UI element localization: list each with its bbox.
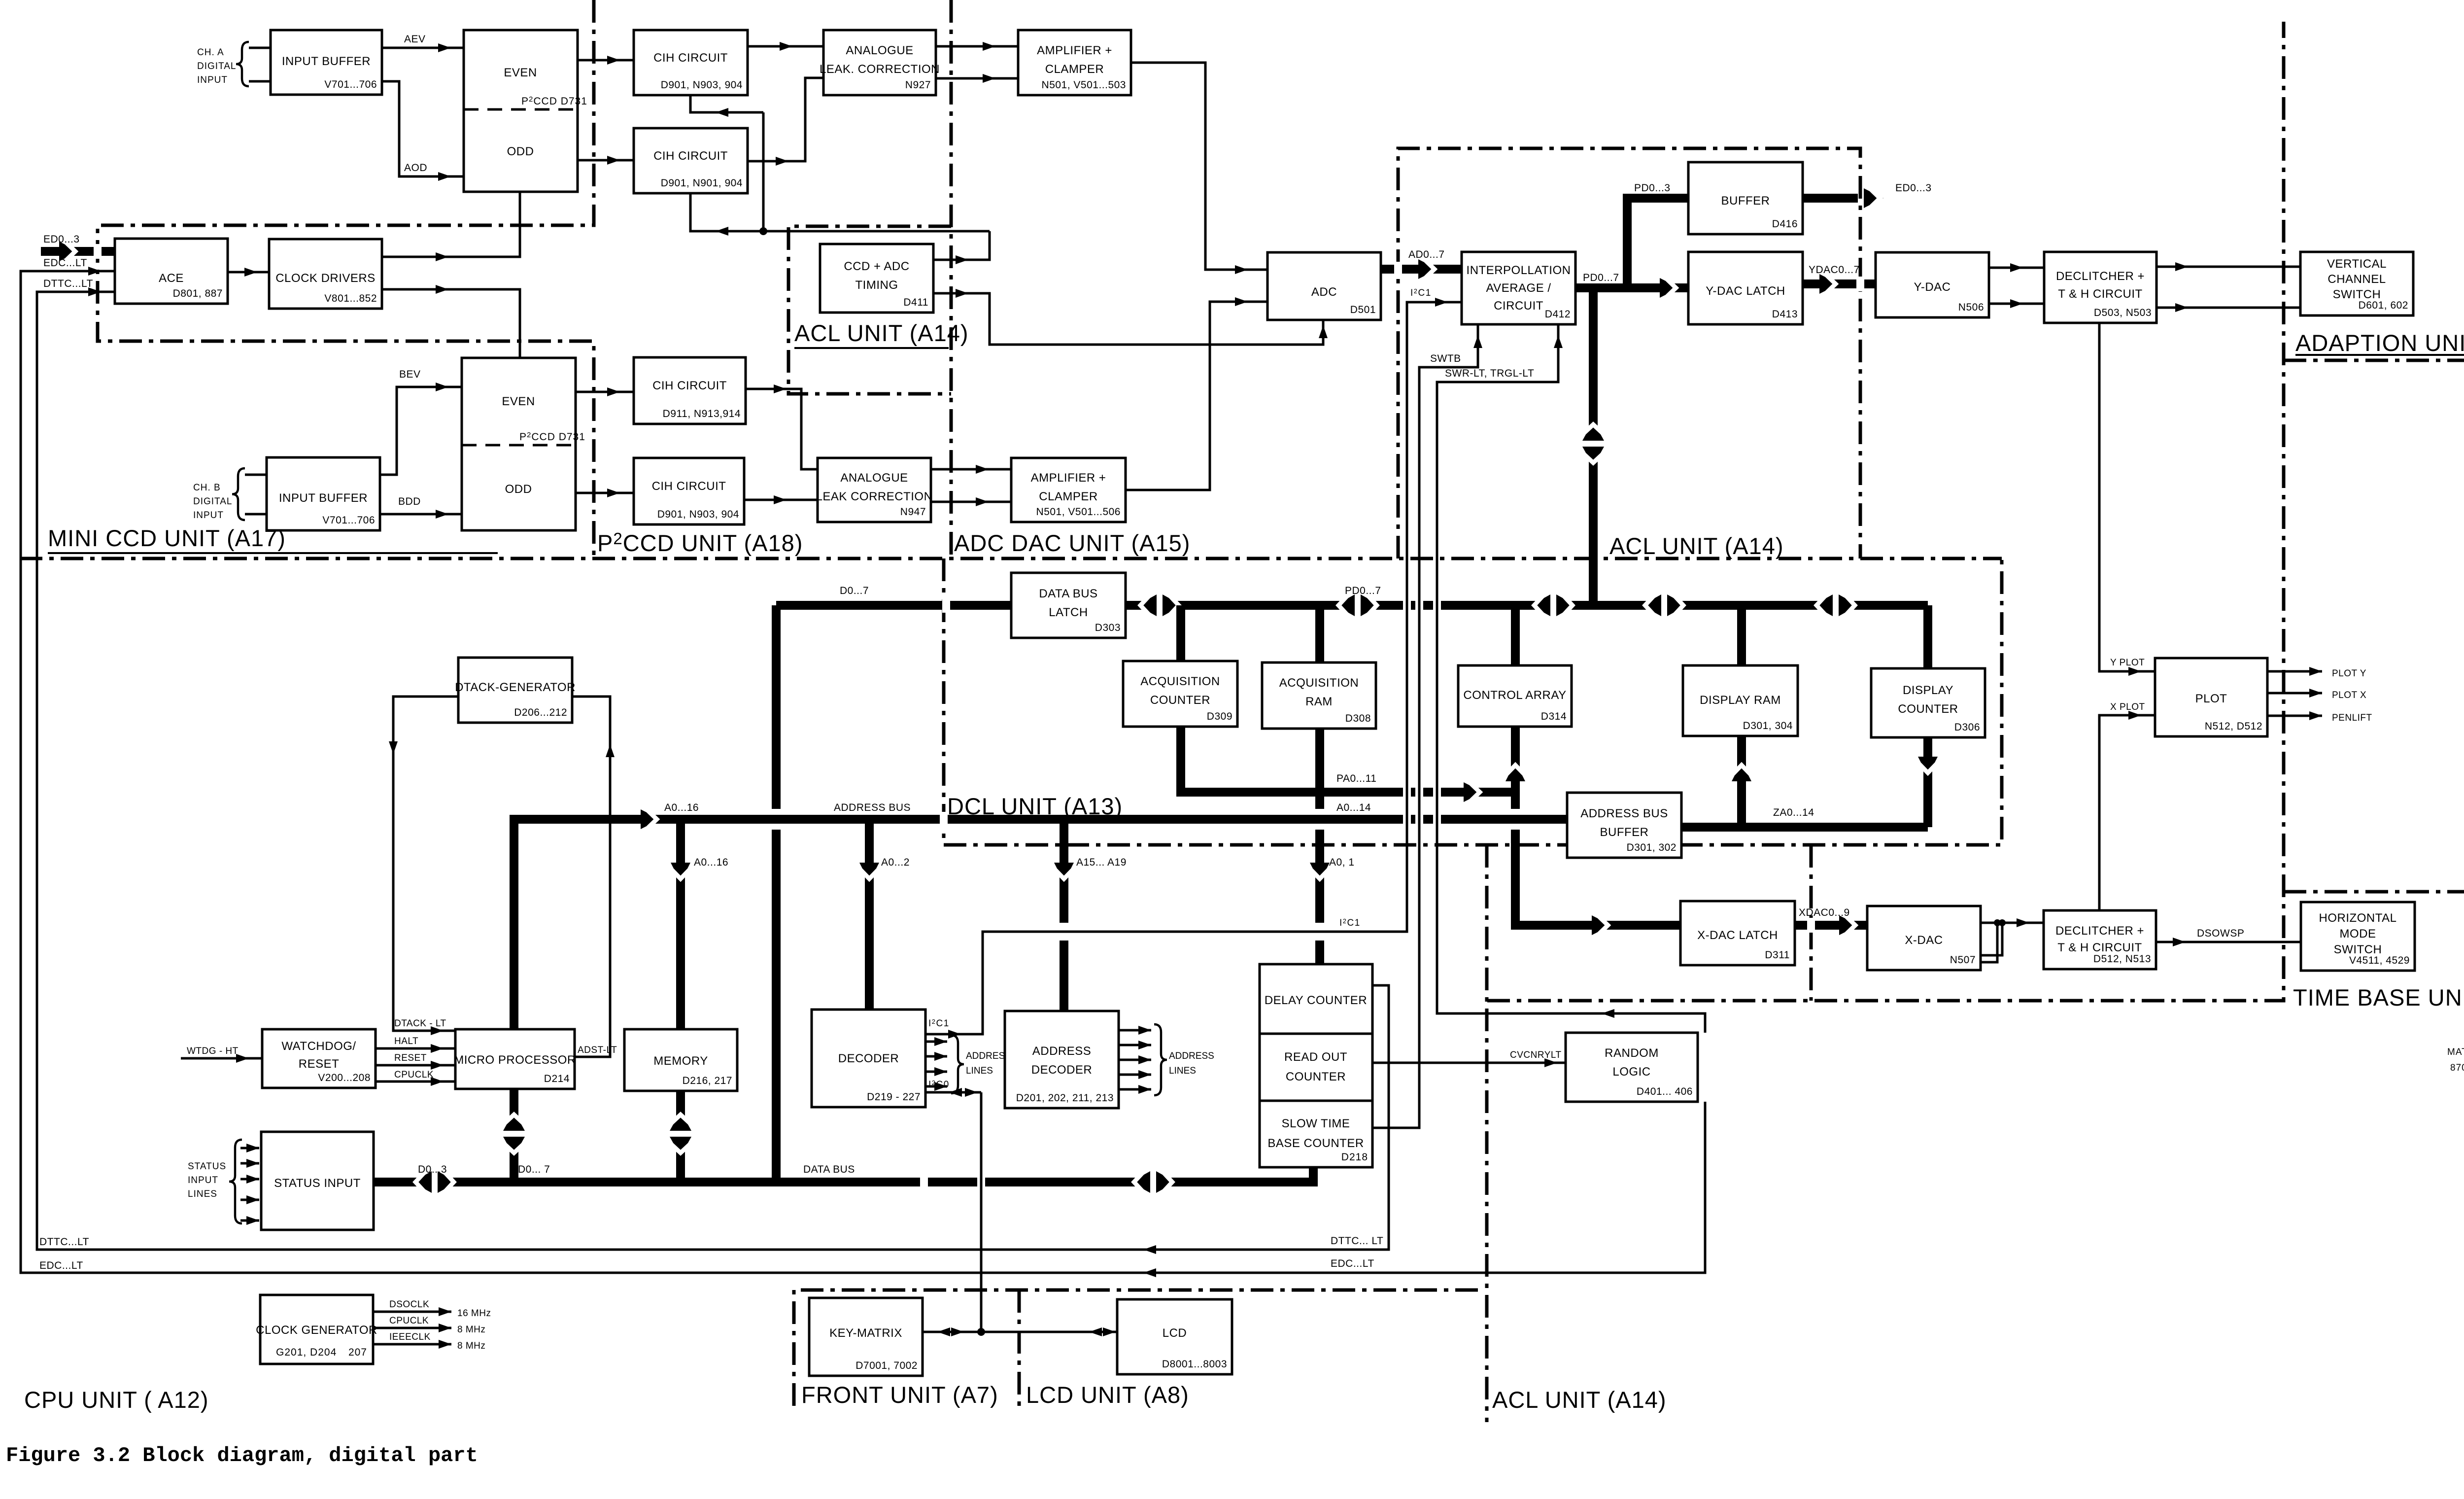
svg-text:COUNTER: COUNTER [1286, 1070, 1346, 1083]
svg-text:N501, V501...506: N501, V501...506 [1036, 506, 1121, 518]
svg-text:PLOT: PLOT [2195, 692, 2227, 705]
svg-text:N506: N506 [1958, 302, 1984, 313]
svg-text:AD0...7: AD0...7 [1408, 249, 1445, 260]
svg-text:D206...212: D206...212 [514, 707, 567, 718]
svg-text:LINES: LINES [188, 1189, 217, 1199]
svg-text:DISPLAY: DISPLAY [1903, 684, 1953, 697]
svg-text:ED0...3: ED0...3 [1895, 182, 1932, 194]
svg-text:IEEECLK: IEEECLK [389, 1332, 431, 1342]
svg-text:D901, N903, 904: D901, N903, 904 [661, 79, 743, 91]
svg-text:SWTB: SWTB [1430, 353, 1461, 364]
svg-text:8 MHz: 8 MHz [457, 1325, 485, 1335]
svg-text:I2C1: I2C1 [1339, 917, 1361, 928]
svg-text:ADDRESS BUS: ADDRESS BUS [1580, 807, 1668, 820]
svg-text:FRONT UNIT (A7): FRONT UNIT (A7) [801, 1382, 998, 1408]
svg-text:D416: D416 [1772, 218, 1798, 230]
svg-text:CH. B: CH. B [193, 483, 221, 493]
svg-text:D306: D306 [1954, 722, 1980, 733]
svg-text:LEAK. CORRECTION: LEAK. CORRECTION [820, 63, 940, 76]
svg-text:WTDG - HT: WTDG - HT [187, 1046, 239, 1056]
svg-text:G201, D204: G201, D204 [276, 1347, 337, 1358]
svg-text:D301, 302: D301, 302 [1627, 842, 1677, 853]
svg-text:Y-DAC: Y-DAC [1914, 280, 1951, 294]
svg-text:8 MHz: 8 MHz [457, 1341, 485, 1351]
svg-text:LATCH: LATCH [1049, 606, 1088, 619]
svg-text:INTERPOLLATION: INTERPOLLATION [1467, 264, 1571, 277]
svg-text:DTACK - LT: DTACK - LT [394, 1018, 446, 1029]
svg-text:EVEN: EVEN [502, 395, 535, 408]
svg-text:DECODER: DECODER [1031, 1063, 1093, 1077]
svg-text:V701...706: V701...706 [322, 515, 375, 526]
svg-text:ADST-LT: ADST-LT [578, 1045, 617, 1055]
svg-text:BDD: BDD [398, 496, 421, 507]
svg-text:PLOT Y: PLOT Y [2332, 668, 2366, 679]
svg-text:STATUS: STATUS [188, 1161, 226, 1172]
svg-text:D411: D411 [903, 297, 928, 308]
svg-text:CIRCUIT: CIRCUIT [1494, 299, 1543, 313]
svg-text:CIH CIRCUIT: CIH CIRCUIT [653, 149, 728, 163]
svg-text:CIH CIRCUIT: CIH CIRCUIT [652, 379, 727, 392]
svg-text:ADC DAC UNIT (A15): ADC DAC UNIT (A15) [954, 530, 1190, 556]
svg-text:ED0...3: ED0...3 [43, 234, 80, 245]
svg-text:AMPLIFIER +: AMPLIFIER + [1037, 44, 1112, 57]
svg-text:DTTC...LT: DTTC...LT [43, 278, 93, 289]
svg-text:CH. A: CH. A [197, 47, 224, 58]
svg-text:RESET: RESET [299, 1057, 340, 1071]
svg-text:X-DAC: X-DAC [1905, 934, 1943, 947]
svg-text:CIH CIRCUIT: CIH CIRCUIT [653, 51, 728, 65]
svg-text:CVCNRYLT: CVCNRYLT [1510, 1050, 1562, 1060]
svg-text:COUNTER: COUNTER [1898, 702, 1958, 716]
svg-text:XDAC0...9: XDAC0...9 [1799, 907, 1850, 918]
svg-text:D501: D501 [1350, 304, 1376, 315]
svg-text:D0...7: D0...7 [840, 585, 869, 596]
svg-text:PLOT X: PLOT X [2332, 690, 2366, 700]
svg-text:PENLIFT: PENLIFT [2332, 713, 2372, 723]
svg-text:DECLITCHER +: DECLITCHER + [2056, 270, 2145, 283]
svg-text:INPUT: INPUT [188, 1175, 218, 1185]
svg-text:PD0...7: PD0...7 [1583, 272, 1619, 283]
svg-text:MAT2838: MAT2838 [2447, 1047, 2464, 1057]
svg-text:207: 207 [348, 1347, 367, 1358]
svg-text:AEV: AEV [404, 34, 426, 45]
svg-text:ODD: ODD [507, 145, 534, 158]
svg-text:DTACK-GENERATOR: DTACK-GENERATOR [455, 681, 576, 694]
svg-text:D801, 887: D801, 887 [173, 288, 223, 299]
svg-text:RESET: RESET [394, 1053, 427, 1063]
svg-text:INPUT: INPUT [193, 510, 224, 521]
svg-text:D309: D309 [1207, 711, 1232, 722]
svg-text:DTTC... LT: DTTC... LT [1331, 1235, 1383, 1247]
svg-text:BEV: BEV [399, 369, 421, 380]
svg-text:BUFFER: BUFFER [1721, 194, 1770, 208]
svg-text:ADDRESS BUS: ADDRESS BUS [834, 802, 911, 813]
svg-text:T & H CIRCUIT: T & H CIRCUIT [2057, 941, 2142, 954]
svg-text:CONTROL ARRAY: CONTROL ARRAY [1463, 689, 1566, 702]
svg-text:N947: N947 [900, 506, 926, 518]
svg-text:AMPLIFIER +: AMPLIFIER + [1031, 471, 1106, 485]
svg-text:D901, N901, 904: D901, N901, 904 [661, 177, 743, 189]
svg-text:ODD: ODD [505, 483, 532, 496]
svg-text:Y-DAC LATCH: Y-DAC LATCH [1706, 284, 1785, 298]
svg-text:X-DAC LATCH: X-DAC LATCH [1697, 929, 1778, 942]
svg-text:DCL UNIT (A13): DCL UNIT (A13) [947, 793, 1123, 819]
svg-text:SWITCH: SWITCH [2333, 288, 2381, 301]
svg-text:DSOWSP: DSOWSP [2197, 928, 2244, 939]
svg-text:RAM: RAM [1305, 695, 1333, 708]
svg-text:V701...706: V701...706 [324, 79, 377, 90]
svg-text:BASE COUNTER: BASE COUNTER [1267, 1137, 1364, 1150]
svg-text:870703: 870703 [2450, 1063, 2464, 1073]
svg-text:DSOCLK: DSOCLK [389, 1299, 429, 1310]
svg-text:X PLOT: X PLOT [2110, 702, 2145, 712]
svg-text:WATCHDOG/: WATCHDOG/ [281, 1040, 356, 1053]
svg-text:I2C1: I2C1 [1410, 287, 1432, 298]
svg-text:CIH CIRCUIT: CIH CIRCUIT [652, 480, 726, 493]
svg-text:ANALOGUE: ANALOGUE [840, 471, 908, 485]
svg-text:ADDRESS: ADDRESS [1032, 1045, 1092, 1058]
svg-text:CHANNEL: CHANNEL [2327, 273, 2386, 286]
svg-text:CCD + ADC: CCD + ADC [844, 260, 909, 273]
svg-text:READ OUT: READ OUT [1284, 1050, 1347, 1064]
svg-text:D218: D218 [1341, 1151, 1368, 1163]
svg-text:A0, 1: A0, 1 [1329, 857, 1355, 868]
svg-text:N507: N507 [1950, 954, 1976, 966]
svg-text:D911, N913,914: D911, N913,914 [663, 408, 741, 419]
svg-text:A15... A19: A15... A19 [1076, 857, 1127, 868]
svg-text:D601, 602: D601, 602 [2359, 300, 2408, 311]
svg-text:D314: D314 [1541, 711, 1567, 722]
svg-text:RANDOM: RANDOM [1605, 1046, 1659, 1060]
svg-text:COUNTER: COUNTER [1150, 694, 1210, 707]
svg-text:TIME BASE UNIT ( A4): TIME BASE UNIT ( A4) [2293, 984, 2464, 1011]
svg-text:CLOCK GENERATOR: CLOCK GENERATOR [256, 1324, 377, 1337]
svg-text:STATUS INPUT: STATUS INPUT [274, 1177, 361, 1190]
svg-text:D303: D303 [1095, 622, 1121, 633]
svg-text:N501, V501...503: N501, V501...503 [1042, 79, 1126, 91]
svg-text:I2C1: I2C1 [928, 1018, 950, 1029]
svg-text:D901, N903, 904: D901, N903, 904 [657, 509, 739, 520]
svg-text:MODE: MODE [2340, 927, 2376, 941]
svg-text:DATA BUS: DATA BUS [803, 1164, 855, 1175]
svg-text:ADAPTION UNIT ( A16): ADAPTION UNIT ( A16) [2295, 330, 2464, 356]
svg-text:INPUT BUFFER: INPUT BUFFER [279, 491, 368, 505]
svg-text:N927: N927 [905, 79, 931, 91]
svg-text:N512, D512: N512, D512 [2205, 721, 2262, 732]
svg-text:D512, N513: D512, N513 [2093, 953, 2151, 965]
svg-text:CLAMPER: CLAMPER [1045, 63, 1104, 76]
svg-text:DELAY COUNTER: DELAY COUNTER [1265, 994, 1367, 1007]
svg-text:BUFFER: BUFFER [1600, 826, 1649, 839]
svg-text:I2C0: I2C0 [928, 1079, 950, 1090]
svg-text:MICRO PROCESSOR: MICRO PROCESSOR [454, 1053, 576, 1067]
svg-text:D413: D413 [1772, 309, 1798, 320]
svg-text:D401... 406: D401... 406 [1637, 1086, 1693, 1097]
svg-text:EDC...LT: EDC...LT [39, 1260, 83, 1271]
svg-text:DISPLAY RAM: DISPLAY RAM [1700, 694, 1781, 707]
svg-text:TIMING: TIMING [856, 279, 898, 292]
svg-text:AVERAGE /: AVERAGE / [1486, 281, 1551, 295]
svg-text:ACQUISITION: ACQUISITION [1140, 675, 1220, 688]
svg-text:DECLITCHER +: DECLITCHER + [2055, 924, 2144, 938]
svg-text:D412: D412 [1545, 309, 1571, 320]
svg-text:DECODER: DECODER [838, 1052, 899, 1065]
svg-text:DTTC...LT: DTTC...LT [39, 1236, 89, 1248]
svg-text:V801...852: V801...852 [324, 293, 377, 304]
svg-text:PA0...11: PA0...11 [1336, 773, 1376, 784]
svg-text:LCD: LCD [1163, 1326, 1187, 1340]
svg-text:D219 - 227: D219 - 227 [867, 1091, 921, 1103]
svg-text:LOGIC: LOGIC [1612, 1065, 1650, 1079]
svg-text:A0...2: A0...2 [881, 857, 910, 868]
svg-text:EDC...LT: EDC...LT [1331, 1258, 1374, 1269]
svg-text:Figure 3.2 Block diagram, digi: Figure 3.2 Block diagram, digital part [6, 1444, 478, 1467]
svg-text:DATA BUS: DATA BUS [1039, 587, 1097, 600]
svg-text:INPUT: INPUT [197, 75, 228, 85]
svg-text:P2CCD UNIT (A18): P2CCD UNIT (A18) [597, 529, 803, 556]
svg-text:D214: D214 [544, 1073, 570, 1084]
svg-text:A0...14: A0...14 [1336, 802, 1371, 813]
svg-text:HALT: HALT [394, 1036, 418, 1046]
svg-text:DIGITAL: DIGITAL [193, 496, 233, 507]
svg-text:LCD UNIT (A8): LCD UNIT (A8) [1026, 1382, 1189, 1408]
svg-text:PD0...3: PD0...3 [1634, 182, 1671, 194]
svg-text:ACQUISITION: ACQUISITION [1279, 676, 1359, 690]
svg-text:D216, 217: D216, 217 [683, 1075, 732, 1086]
svg-text:SWR-LT, TRGL-LT: SWR-LT, TRGL-LT [1445, 368, 1534, 379]
svg-text:LEAK CORRECTION: LEAK CORRECTION [816, 490, 933, 503]
svg-text:Y PLOT: Y PLOT [2110, 658, 2145, 668]
svg-text:CPU UNIT ( A12): CPU UNIT ( A12) [24, 1387, 209, 1413]
svg-text:A0...16: A0...16 [664, 802, 699, 813]
svg-text:D7001, 7002: D7001, 7002 [856, 1360, 918, 1371]
svg-text:EVEN: EVEN [504, 66, 537, 79]
svg-text:V200...208: V200...208 [318, 1072, 371, 1083]
svg-text:D0...3: D0...3 [418, 1164, 447, 1175]
svg-text:D503, N503: D503, N503 [2094, 307, 2152, 318]
svg-text:CLAMPER: CLAMPER [1039, 490, 1098, 503]
svg-text:D311: D311 [1765, 949, 1790, 961]
svg-text:D8001...8003: D8001...8003 [1162, 1359, 1227, 1370]
svg-text:V4511, 4529: V4511, 4529 [2349, 955, 2410, 966]
svg-text:A0...16: A0...16 [694, 857, 728, 868]
svg-text:D301, 304: D301, 304 [1743, 720, 1793, 732]
svg-text:HORIZONTAL: HORIZONTAL [2319, 911, 2397, 925]
svg-text:CPUCLK: CPUCLK [394, 1070, 434, 1080]
svg-text:ACL UNIT (A14): ACL UNIT (A14) [1609, 533, 1784, 559]
svg-text:ZA0...14: ZA0...14 [1773, 807, 1814, 818]
svg-text:ADDRESS: ADDRESS [1169, 1051, 1214, 1061]
svg-text:D201, 202, 211, 213: D201, 202, 211, 213 [1016, 1092, 1114, 1104]
svg-text:SLOW TIME: SLOW TIME [1282, 1117, 1350, 1130]
svg-text:ADC: ADC [1311, 285, 1337, 299]
svg-text:VERTICAL: VERTICAL [2327, 257, 2387, 271]
svg-text:16 MHz: 16 MHz [457, 1308, 491, 1319]
svg-text:EDC...LT: EDC...LT [43, 257, 87, 269]
svg-text:DIGITAL: DIGITAL [197, 61, 237, 71]
svg-text:D0... 7: D0... 7 [518, 1164, 550, 1175]
svg-text:T & H CIRCUIT: T & H CIRCUIT [2058, 287, 2142, 301]
svg-text:LINES: LINES [1169, 1066, 1196, 1076]
svg-text:ACE: ACE [159, 272, 184, 285]
svg-text:CPUCLK: CPUCLK [389, 1316, 429, 1326]
svg-text:D308: D308 [1345, 713, 1371, 724]
svg-text:AOD: AOD [404, 162, 427, 174]
svg-text:KEY-MATRIX: KEY-MATRIX [829, 1326, 902, 1340]
svg-text:ACL UNIT (A14): ACL UNIT (A14) [794, 320, 969, 346]
svg-text:YDAC0...7: YDAC0...7 [1809, 264, 1860, 276]
svg-text:ACL UNIT (A14): ACL UNIT (A14) [1492, 1387, 1667, 1413]
svg-text:CLOCK DRIVERS: CLOCK DRIVERS [275, 272, 376, 285]
svg-text:PD0...7: PD0...7 [1345, 585, 1381, 596]
svg-text:LINES: LINES [966, 1066, 993, 1076]
svg-text:MEMORY: MEMORY [653, 1054, 708, 1068]
svg-text:INPUT BUFFER: INPUT BUFFER [282, 55, 371, 68]
svg-text:MINI CCD UNIT (A17): MINI CCD UNIT (A17) [48, 525, 286, 551]
svg-text:ANALOGUE: ANALOGUE [846, 44, 913, 57]
svg-text:SWITCH: SWITCH [2334, 943, 2382, 956]
